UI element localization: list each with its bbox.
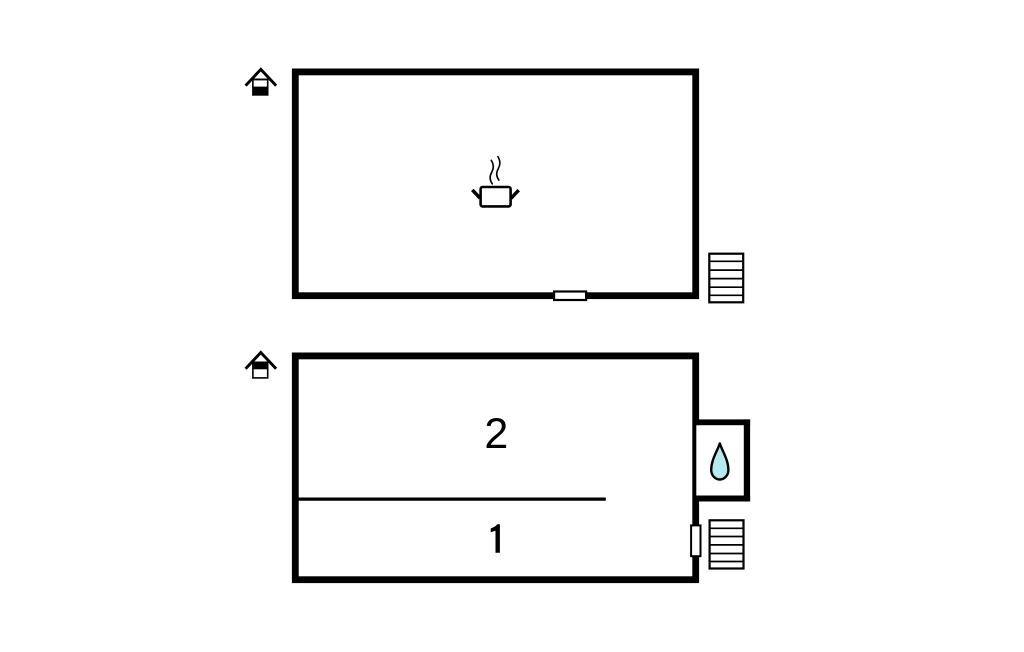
svg-text:2: 2 — [484, 410, 508, 458]
